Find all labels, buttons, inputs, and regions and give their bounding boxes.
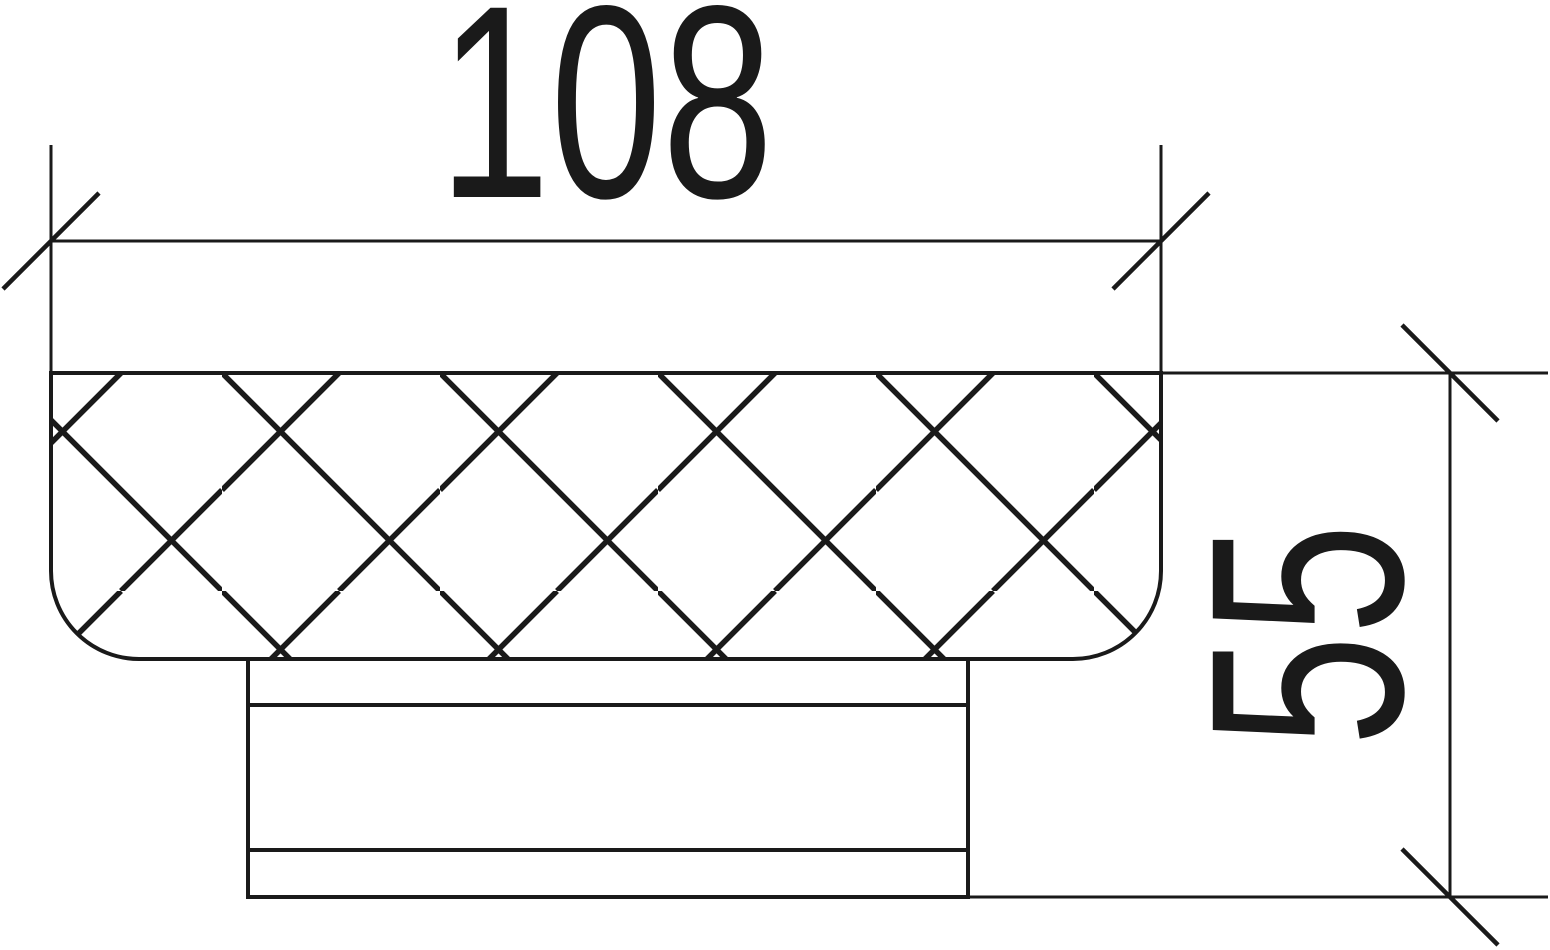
stem-group <box>248 659 968 897</box>
dimension-value-108: 108 <box>439 0 774 256</box>
stem-outline <box>248 659 968 897</box>
dimension-value-55: 55 <box>1154 523 1461 746</box>
technical-drawing-canvas: 108 55 <box>0 0 1550 950</box>
dimension-drawing-svg: 108 55 <box>0 0 1550 950</box>
knurled-body-outline <box>51 373 1161 659</box>
